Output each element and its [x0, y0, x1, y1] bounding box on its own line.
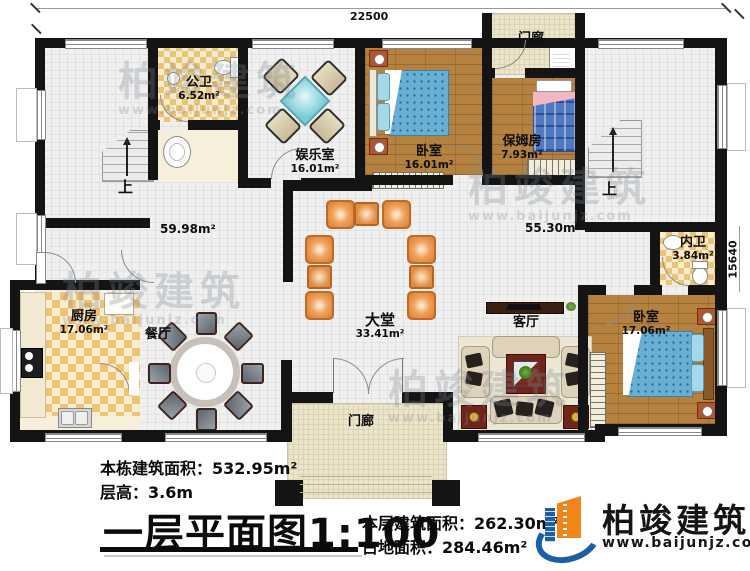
stat-footprint: 占地面积：284.46m² [362, 534, 527, 558]
wall [35, 218, 150, 228]
room-label-gongwei: 公卫 6.52m² [170, 76, 228, 102]
window [382, 39, 472, 49]
window [252, 39, 334, 49]
stat-floor-height-value: 3.6m [148, 483, 193, 502]
plant-icon [566, 302, 576, 311]
open-area-right: 55.30m² [525, 221, 581, 235]
room-label-woshi-bottom: 卧室 17.06m² [617, 311, 675, 337]
watermark: 柏竣建筑 www.baijunjz.com [388, 370, 572, 425]
dining-table-center-icon [196, 363, 216, 383]
room-label-baomufang: 保姆房 7.93m² [490, 135, 554, 161]
bay-window-outline [727, 308, 746, 388]
nightstand-icon [697, 402, 716, 419]
title-underline-shadow [104, 555, 362, 557]
room-label-datang: 大堂 33.41m² [352, 312, 408, 341]
wall [283, 180, 293, 282]
wall [281, 360, 292, 440]
watermark-subtext: www.baijunjz.com [118, 104, 302, 117]
title-underline [100, 547, 358, 552]
room-label-canting: 餐厅 [138, 328, 178, 343]
wash-basin-inner-icon [169, 143, 185, 161]
wall [634, 285, 650, 295]
hall-table-icon [307, 265, 332, 289]
pillow-icon [691, 364, 704, 392]
hall-chair-icon [305, 235, 334, 264]
hall-chair-icon [326, 200, 355, 229]
room-label-chufang: 厨房 17.06m² [55, 310, 113, 336]
window [618, 427, 702, 436]
wall [148, 120, 160, 130]
stairs-up-label: 上 [602, 178, 617, 199]
bed-headboard-icon [703, 328, 714, 400]
watermark-text: 柏竣建筑 [388, 367, 572, 413]
wall [650, 230, 660, 292]
hall-chair-icon [407, 291, 436, 320]
pillow-icon [377, 73, 390, 101]
hall-table-icon [409, 265, 434, 289]
window [717, 85, 727, 149]
stat-building-total: 本栋建筑面积：532.95m² [100, 455, 297, 479]
hall-table-icon [354, 202, 379, 226]
dining-chair-icon [241, 363, 264, 384]
watermark: 柏竣建筑 www.baijunjz.com [468, 168, 652, 223]
stat-floor-area-label: 本层建筑面积： [362, 514, 474, 533]
stove-burner-icon [25, 364, 33, 372]
pillow-icon [377, 103, 390, 131]
kitchen-sink-basin-icon [75, 411, 88, 425]
window [598, 39, 684, 49]
bay-window-outline [16, 213, 37, 265]
nanny-bed-pillow-icon [536, 80, 572, 92]
entry-door-leaf [333, 358, 334, 393]
room-label-yuleshi: 娱乐室 16.01m² [283, 149, 347, 175]
dining-chair-icon [196, 408, 217, 431]
room-label-menlang-bottom: 门廊 [335, 415, 387, 430]
dimension-top-value: 22500 [350, 10, 388, 23]
stat-building-total-value: 532.95m² [212, 459, 297, 478]
tv-icon [506, 304, 542, 310]
stat-footprint-label: 占地面积： [362, 538, 442, 557]
wall [525, 68, 578, 78]
watermark-subtext: www.baijunjz.com [388, 412, 572, 425]
watermark-text: 柏竣建筑 [468, 165, 652, 211]
wardrobe-icon [590, 352, 606, 428]
dimension-right-value: 15640 [727, 240, 740, 278]
wall [688, 285, 727, 295]
bay-window-outline [16, 88, 37, 142]
porch-step-line [300, 492, 432, 493]
window [717, 310, 727, 386]
wall [188, 120, 245, 130]
toilet-icon [692, 267, 708, 285]
stat-floor-height-label: 层高： [100, 483, 148, 502]
dimension-line-top [35, 8, 727, 9]
stat-floor-height: 层高：3.6m [100, 479, 193, 503]
wall [238, 178, 271, 188]
wall [355, 45, 365, 185]
company-website: www.baijunjz.com [602, 535, 750, 551]
bay-window-outline [727, 83, 746, 151]
logo-building-slits-icon [563, 504, 567, 536]
door-gap [129, 362, 139, 395]
nightstand-icon [369, 50, 388, 67]
wall [650, 285, 662, 295]
stove-burner-icon [25, 352, 33, 360]
wall [292, 180, 372, 191]
corner-tick [734, 9, 744, 19]
window [478, 433, 585, 442]
window [165, 433, 267, 442]
hall-chair-icon [407, 235, 436, 264]
room-label-keting: 客厅 [505, 316, 547, 331]
floor-plan-page: { "document": { "plan_title": "一层平面图", "… [0, 0, 750, 566]
company-logo-icon [535, 492, 597, 556]
stat-building-total-label: 本栋建筑面积： [100, 459, 212, 478]
dining-chair-icon [148, 363, 171, 384]
pillow-icon [691, 334, 704, 362]
wall [482, 68, 495, 78]
open-area-left: 59.98m² [160, 222, 216, 236]
kitchen-sink-basin-icon [61, 411, 74, 425]
bay-window-outline [0, 328, 13, 394]
porch-step-line [300, 484, 432, 485]
window [36, 90, 46, 140]
stairs-left-arrow-icon [126, 140, 128, 176]
logo-building-orange-icon [557, 496, 581, 538]
logo-building-blue-icon [545, 508, 555, 542]
stairs-up-label: 上 [118, 176, 133, 197]
bed-headboard-icon [369, 69, 377, 137]
nightstand-icon [697, 308, 716, 325]
water-heater-detail-icon [553, 51, 570, 67]
hall-chair-icon [305, 291, 334, 320]
room-label-neiwei: 内卫 3.84m² [668, 236, 718, 262]
stat-floor-area: 本层建筑面积：262.30m² [362, 510, 559, 534]
wall [578, 285, 588, 436]
room-label-woshi-top: 卧室 16.01m² [400, 145, 458, 171]
nightstand-icon [369, 138, 388, 155]
window [65, 39, 147, 49]
hall-chair-icon [382, 200, 411, 229]
stat-footprint-value: 284.46m² [442, 538, 527, 557]
porch-step-line [300, 476, 432, 477]
window [45, 433, 122, 442]
room-label-menlang-top: 门廊 [505, 32, 557, 47]
corner-tick [31, 24, 41, 34]
